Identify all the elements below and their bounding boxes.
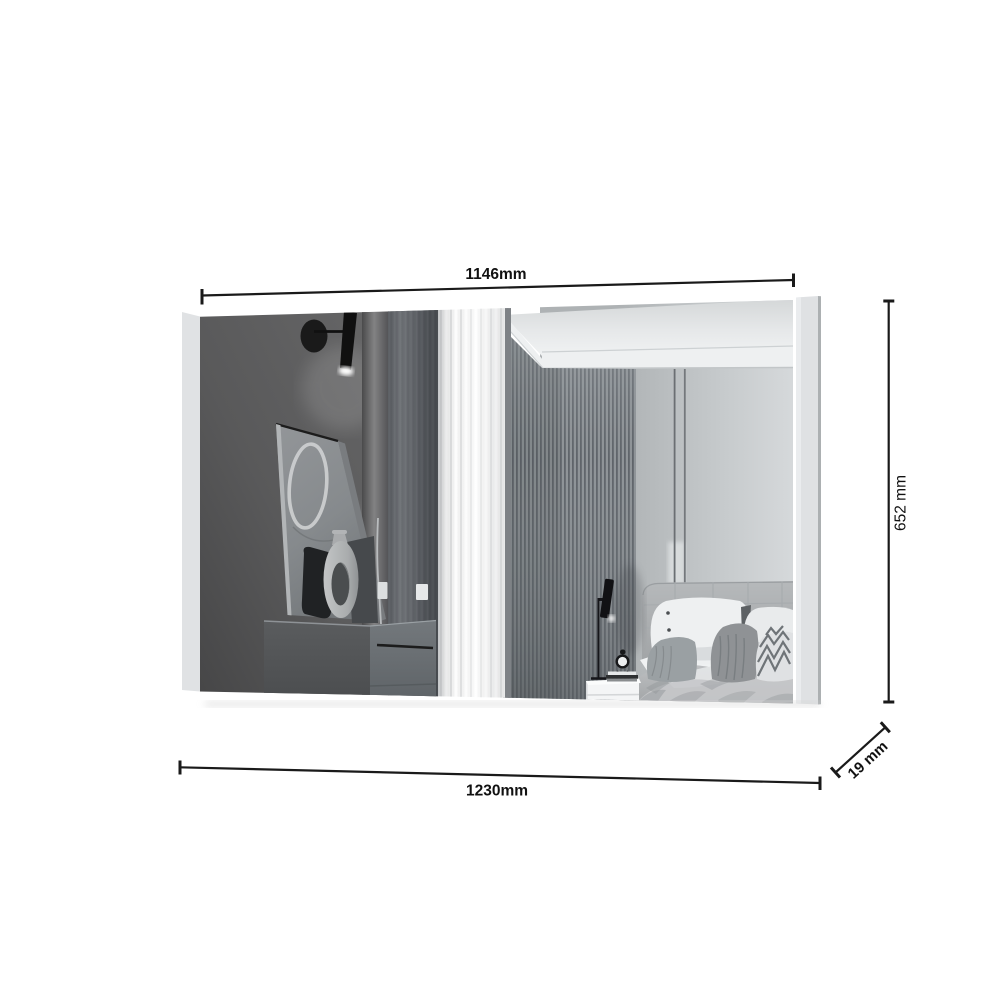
- svg-text:652 mm: 652 mm: [893, 475, 910, 531]
- svg-text:19 mm: 19 mm: [845, 738, 892, 783]
- svg-text:1146mm: 1146mm: [465, 266, 526, 283]
- svg-text:1230mm: 1230mm: [466, 783, 528, 800]
